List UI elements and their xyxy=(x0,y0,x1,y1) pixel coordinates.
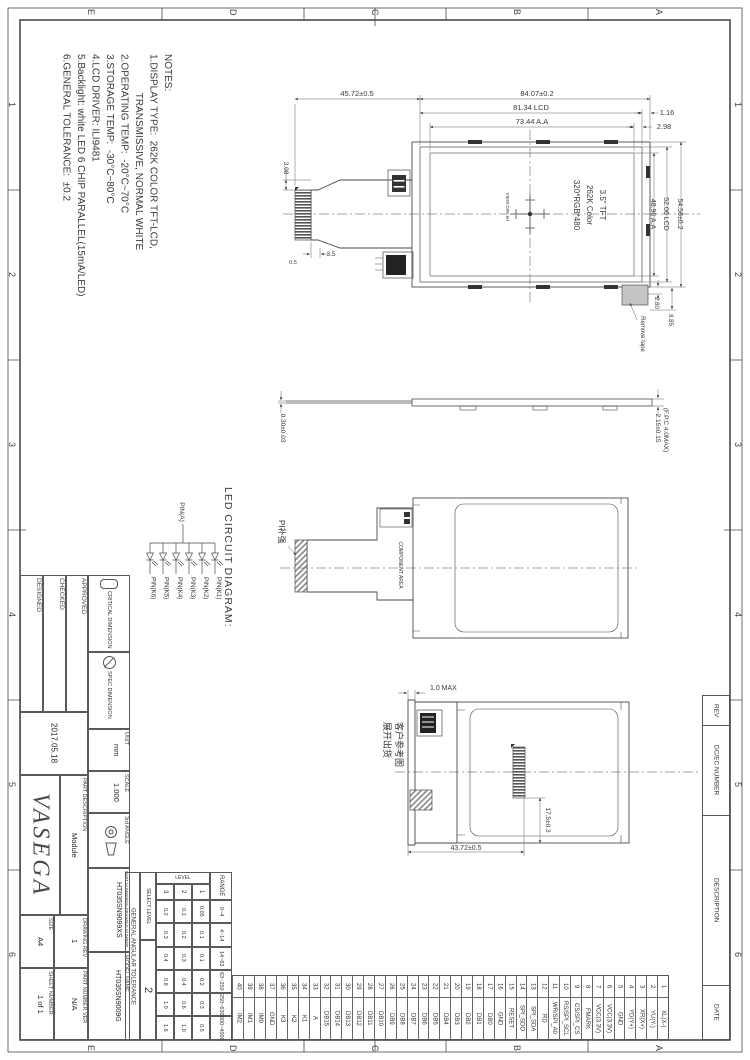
dim-fpc-width: 45.72±0.5 xyxy=(340,89,373,98)
pin-column: 1 XL(X-) xyxy=(657,976,668,1039)
pi-stiffener-label: PI补强 xyxy=(275,520,287,580)
side-view-dim-text: 0.30±0.03 2.15±0.15 (F.P.C 4.0MAX) xyxy=(279,408,669,452)
unfold-zebra-contacts xyxy=(513,747,525,798)
led-cathode-label: PIN(K5) xyxy=(157,577,170,639)
pin-name-cell: K3 xyxy=(277,998,287,1039)
select-level-value: 2 xyxy=(142,987,154,993)
zone-number: 4 xyxy=(7,612,17,617)
pin-number-cell: 39 xyxy=(244,976,254,998)
tolerance-select-value-cell: 2 xyxy=(140,940,156,1040)
note-line: TRANSMISSIVE, NORMAL WHITE xyxy=(131,54,146,454)
pin-column: 37 GND xyxy=(265,976,276,1039)
led-cathode-label: PIN(K4) xyxy=(170,577,183,639)
pin-number-cell: 4 xyxy=(625,976,635,998)
pin-column: 10 RS/SPI_SCL xyxy=(559,976,570,1039)
pin-name-cell: RESET xyxy=(506,998,516,1039)
zone-letter: C xyxy=(370,1045,380,1052)
level-col-2: 2 xyxy=(174,884,192,900)
pin-name-cell: SPI_SDA xyxy=(527,998,537,1039)
zone-letter: E xyxy=(86,1045,96,1051)
spec-dimension-icon xyxy=(103,656,116,669)
led-cathode-label: PIN(K1) xyxy=(209,577,222,639)
zone-letter: E xyxy=(86,9,96,15)
titleblock-part-description: PART DESCRIPTION Module xyxy=(60,775,88,915)
zone-letter: B xyxy=(512,1045,522,1051)
note-line: 4.LCD DRIVER: ILI9481 xyxy=(87,54,102,454)
pin-number-cell: 1 xyxy=(658,976,668,998)
zone-letter: A xyxy=(654,1045,664,1051)
pin-name-cell: YU(Y-) xyxy=(647,998,657,1039)
component-area-label: COMPONENT AREA xyxy=(397,541,403,589)
pin-name-cell: YD(Y+) xyxy=(625,998,635,1039)
tolerance-level-header-cell: LEVEL xyxy=(156,872,210,884)
pin-column: 25 DB8 xyxy=(396,976,407,1039)
tolerance-row: 0.4 0.3 0.1 14~63 xyxy=(156,947,232,970)
pin-name-cell: GND xyxy=(495,998,505,1039)
tolerance-row: 1.0 0.6 0.3 250~630 xyxy=(156,993,232,1016)
pin-name-cell: DB6 xyxy=(419,998,429,1039)
titleblock-designed: DESIGNED xyxy=(20,575,43,712)
tolerance-row: 0.2 0.1 0.05 0~4 xyxy=(156,900,232,923)
pin-name-cell: A xyxy=(310,998,320,1039)
level-col-1: 1 xyxy=(192,884,210,900)
dim-fpc-thickness: 0.30±0.03 xyxy=(279,414,286,443)
front-view-dimensions xyxy=(283,95,686,310)
led-circuit xyxy=(147,524,224,574)
pin-column: 32 DB15 xyxy=(320,976,331,1039)
unfold-view-dim-text: 1.0 MAX 43.72±0.5 17.5±0.3 xyxy=(430,685,551,852)
titleblock-model-name: MODEL NAME HT035SN9009G xyxy=(88,952,130,1040)
pin-name-cell: VCC(3.3V) xyxy=(593,998,603,1039)
pin-column: 29 DB12 xyxy=(352,976,363,1039)
pin-name-cell: RS/SPI_SCL xyxy=(560,998,570,1039)
pin-column: 34 K1 xyxy=(298,976,309,1039)
pin-name-cell: XL(X-) xyxy=(658,998,668,1039)
pin-number-cell: 17 xyxy=(484,976,494,998)
panel-color-label: 262K Color xyxy=(585,185,594,225)
pin-name-cell: K1 xyxy=(299,998,309,1039)
pin-column: 8 FMARK xyxy=(581,976,592,1039)
remove-tape-label: Remove tape xyxy=(639,316,645,352)
zone-number: 5 xyxy=(733,782,743,787)
pin-number-cell: 7 xyxy=(593,976,603,998)
pin-name-cell: DB0 xyxy=(484,998,494,1039)
pin-number-cell: 23 xyxy=(419,976,429,998)
panel-size-label: 3.5" TFT xyxy=(598,190,607,221)
tolerance-row: 0.3 0.2 0.1 4~14 xyxy=(156,923,232,946)
pin-number-cell: 22 xyxy=(429,976,439,998)
fpc-zebra-contacts xyxy=(295,190,311,240)
dim-module-width: 84.07±0.2 xyxy=(520,89,553,98)
titleblock-sheet-number: SHEET NUMBER 1 of 1 xyxy=(20,968,54,1040)
titleblock-approved: APPROVED xyxy=(66,575,88,712)
pin-number-cell: 26 xyxy=(386,976,396,998)
led-cathode-label: PIN(K6) xyxy=(144,577,157,639)
pin-column: 18 DB1 xyxy=(472,976,483,1039)
dim-aa-height: 48.96 A.A xyxy=(649,199,656,230)
pin-name-cell: DB13 xyxy=(342,998,352,1039)
drawing-sheet: 45.72±0.5 84.07±0.2 81.34 LCD 73.44 A.A … xyxy=(0,0,750,1060)
note-line: 5.Backlight: white LED 6 CHIP PARALLEL(1… xyxy=(73,54,88,454)
pin-number-cell: 2 xyxy=(647,976,657,998)
pin-number-cell: 25 xyxy=(397,976,407,998)
pin-column: 16 GND xyxy=(494,976,505,1039)
pin-name-cell: DB4 xyxy=(440,998,450,1039)
zone-number: 2 xyxy=(733,272,743,277)
note-line: 6.GENERAL TOLERANCE: ±0.2 xyxy=(58,54,73,454)
pin-column: 31 DB14 xyxy=(330,976,341,1039)
titleblock-part-number-ver: PART NUMBER VER N/A xyxy=(54,968,88,1040)
note-line: 1.DISPLAY TYPE: 262K COLOR TFT-LCD, xyxy=(145,54,160,454)
pin-number-cell: 12 xyxy=(538,976,548,998)
pin-number-cell: 33 xyxy=(310,976,320,998)
pin-number-cell: 15 xyxy=(506,976,516,998)
pin-name-cell: DB10 xyxy=(375,998,385,1039)
pin-column: 6 VCC(3.3V) xyxy=(603,976,614,1039)
dim-total-note: (F.P.C 4.0MAX) xyxy=(662,408,669,452)
pin-column: 14 SPI_SDO xyxy=(516,976,527,1039)
pin-table: 1 XL(X-) 2 YU(Y-) 3 XR(X+) 4 YD(Y+) 5 GN… xyxy=(231,975,669,1040)
panel-resolution-label: 320*RGB*480 xyxy=(572,180,581,231)
pin-name-cell: GND xyxy=(615,998,625,1039)
pin-name-cell: CS/SPI_CS xyxy=(571,998,581,1039)
titleblock-scale: SCALE 1.000 xyxy=(88,771,130,813)
select-level-label: SELECT LEVEL xyxy=(145,888,151,924)
pin-column: 30 DB13 xyxy=(341,976,352,1039)
zone-numbers-right: 123456 xyxy=(731,20,745,1040)
critical-dimension-icon xyxy=(100,579,118,589)
pin-column: 26 DB9 xyxy=(385,976,396,1039)
pin-name-cell: GND xyxy=(266,998,276,1039)
pin-column: 3 XR(X+) xyxy=(635,976,646,1039)
titleblock-checked: CHECKED xyxy=(43,575,66,712)
pin-name-cell: DB11 xyxy=(364,998,374,1039)
pin-column: 24 DB7 xyxy=(407,976,418,1039)
third-angle-symbol xyxy=(101,824,121,858)
dim-aa-width: 73.44 A.A xyxy=(516,117,549,126)
note-line: 2.OPERATING TEMP: -20°C~70°C xyxy=(116,54,131,454)
notes-block: NOTES: 1.DISPLAY TYPE: 262K COLOR TFT-LC… xyxy=(56,54,174,454)
pin-name-cell: DB9 xyxy=(386,998,396,1039)
fpc-tail xyxy=(295,170,413,278)
tolerance-table-title: GENERAL ANGULAR TOLERANCE xyxy=(130,908,136,1005)
dim-bottom-gap1: 2.80 xyxy=(653,297,659,309)
titleblock-date: 2017.05.18 xyxy=(20,712,88,775)
dim-bottom-gap2: 8.85 xyxy=(667,314,673,326)
note-line: 3.STORAGE TEMP: -30°C~80°C xyxy=(102,54,117,454)
led-symbols xyxy=(147,543,224,574)
pin-number-cell: 28 xyxy=(364,976,374,998)
zone-number: 4 xyxy=(733,612,743,617)
pin-number-cell: 21 xyxy=(440,976,450,998)
pin-column: 39 IM1 xyxy=(243,976,254,1039)
zone-number: 1 xyxy=(733,102,743,107)
range-header-cell: RANGE xyxy=(210,872,232,900)
zone-number: 1 xyxy=(7,102,17,107)
tolerance-row: 1.6 1.0 0.5 600~4000 xyxy=(156,1016,232,1039)
pin-name-cell: XR(X+) xyxy=(636,998,646,1039)
pin-number-cell: 16 xyxy=(495,976,505,998)
zone-number: 5 xyxy=(7,782,17,787)
pin-number-cell: 38 xyxy=(255,976,265,998)
titleblock-size: SIZE A4 xyxy=(20,915,54,968)
pin-number-cell: 27 xyxy=(375,976,385,998)
pin-column: 22 DB5 xyxy=(428,976,439,1039)
pin-name-cell: DB5 xyxy=(429,998,439,1039)
pin-column: 20 DB3 xyxy=(450,976,461,1039)
tape-area xyxy=(622,285,648,305)
company-logo: VASEGA xyxy=(27,793,54,897)
zone-letter: D xyxy=(228,1045,238,1052)
pin-column: 38 IM0 xyxy=(254,976,265,1039)
tolerance-select-label-cell: SELECT LEVEL xyxy=(140,872,156,940)
zone-numbers-left: 123456 xyxy=(5,20,19,1040)
led-cathode-labels: PIN(K6)PIN(K5)PIN(K4)PIN(K3)PIN(K2)PIN(K… xyxy=(144,577,223,639)
pin-column: 36 K3 xyxy=(276,976,287,1039)
pin-name-cell: VCC(3.3V) xyxy=(604,998,614,1039)
titleblock-company: VASEGA xyxy=(20,775,60,915)
pin-name-cell: IM1 xyxy=(244,998,254,1039)
pin-number-cell: 19 xyxy=(462,976,472,998)
titleblock-spec-dimension: SPEC DIMENSION xyxy=(88,652,130,729)
pin-name-cell: DB3 xyxy=(451,998,461,1039)
pin-column: 12 RD xyxy=(537,976,548,1039)
level-col-3: 3 xyxy=(156,884,174,900)
pin-column: 28 DB11 xyxy=(363,976,374,1039)
pin-number-cell: 32 xyxy=(321,976,331,998)
pin-column: 7 VCC(3.3V) xyxy=(592,976,603,1039)
pin-name-cell: DB12 xyxy=(353,998,363,1039)
titleblock-part-number: PART NUMBER/IN-DRAWING NUMBER HT035SN909… xyxy=(88,868,130,952)
remove-tape: Remove tape xyxy=(622,285,648,353)
customer-note: 客户参考图展开出货 xyxy=(381,722,429,817)
pin-number-cell: 35 xyxy=(288,976,298,998)
pin-number-cell: 30 xyxy=(342,976,352,998)
range-header: RANGE xyxy=(218,875,224,896)
pin-number-cell: 10 xyxy=(560,976,570,998)
dim-fpc-3: 0.5 xyxy=(289,260,297,266)
pin-name-cell: RD xyxy=(538,998,548,1039)
pin-name-cell: IM2 xyxy=(233,998,243,1039)
dim-lcd-width: 81.34 LCD xyxy=(513,103,549,112)
zone-number: 6 xyxy=(7,952,17,957)
pin-number-cell: 5 xyxy=(615,976,625,998)
pin-name-cell: K2 xyxy=(288,998,298,1039)
zone-letters-bottom: EDCBA xyxy=(20,1041,730,1055)
zone-letter: A xyxy=(654,9,664,15)
pin-number-cell: 29 xyxy=(353,976,363,998)
front-view xyxy=(283,130,700,304)
dim-fpc-1: 3.08 xyxy=(282,162,289,175)
titleblock-unit: UNIT mm xyxy=(88,729,130,771)
zone-number: 3 xyxy=(7,442,17,447)
side-view xyxy=(278,389,664,416)
titleblock-critical-dimension: CRITICAL DIMENSION xyxy=(88,575,130,652)
led-diagram-title: LED CIRCUIT DIAGRAM: xyxy=(222,487,234,652)
pin-column: 17 DB0 xyxy=(483,976,494,1039)
panel-labels: 3.5" TFT 262K Color 320*RGB*480 VIEW DIR… xyxy=(505,180,607,231)
pin-number-cell: 14 xyxy=(517,976,527,998)
zone-number: 2 xyxy=(7,272,17,277)
pin-number-cell: 18 xyxy=(473,976,483,998)
led-cathode-label: PIN(K3) xyxy=(183,577,196,639)
led-cathode-label: PIN(K2) xyxy=(196,577,209,639)
level-header: LEVEL xyxy=(175,875,191,881)
pin-name-cell: DB8 xyxy=(397,998,407,1039)
pin-number-cell: 24 xyxy=(408,976,418,998)
pin-column: 33 A xyxy=(309,976,320,1039)
pin-number-cell: 34 xyxy=(299,976,309,998)
view-direction-label: VIEW DIR. 6H xyxy=(505,193,510,222)
dim-lcd-height: 52.06 LCD xyxy=(662,197,669,230)
pin-name-cell: WR/SPI_A0 xyxy=(549,998,559,1039)
pin-name-cell: IM0 xyxy=(255,998,265,1039)
pin-column: 27 DB10 xyxy=(374,976,385,1039)
pin-number-cell: 40 xyxy=(233,976,243,998)
pin-column: 40 IM2 xyxy=(232,976,243,1039)
pin-column: 13 SPI_SDA xyxy=(526,976,537,1039)
back-connector xyxy=(380,509,412,527)
tolerance-rows: 0.2 0.1 0.05 0~4 0.3 0.2 0.1 4~14 0.4 0.… xyxy=(156,900,232,1040)
pin-name-cell: DB15 xyxy=(321,998,331,1039)
pin-number-cell: 11 xyxy=(549,976,559,998)
pi-stiffener xyxy=(295,540,307,592)
pin-column: 19 DB2 xyxy=(461,976,472,1039)
zone-number: 3 xyxy=(733,442,743,447)
pin-number-cell: 31 xyxy=(331,976,341,998)
pin-column: 35 K2 xyxy=(287,976,298,1039)
dim-fpc-end: 1.0 MAX xyxy=(430,685,457,692)
pin-column: 23 DB6 xyxy=(418,976,429,1039)
dim-total-thickness: 2.15±0.15 xyxy=(654,414,661,443)
pin-column: 15 RESET xyxy=(505,976,516,1039)
pin-number-cell: 13 xyxy=(527,976,537,998)
pin-number-cell: 8 xyxy=(582,976,592,998)
revision-table: REV DC/EC NUMBER DESCRIPTION DATE xyxy=(702,695,730,1040)
pin-column: 2 YU(Y-) xyxy=(646,976,657,1039)
notes-title: NOTES: xyxy=(160,54,175,454)
tolerance-row: 0.8 0.4 0.2 63~250 xyxy=(156,970,232,993)
dim-right-gap1: 1.16 xyxy=(660,108,675,117)
zone-letter: B xyxy=(512,9,522,15)
dim-right-gap2: 2.98 xyxy=(657,122,672,131)
pin-column: 5 GND xyxy=(614,976,625,1039)
revision-header-date: DATE xyxy=(703,986,729,1039)
tolerance-table-title-cell: GENERAL ANGULAR TOLERANCE xyxy=(125,872,140,1040)
pin-name-cell: DB1 xyxy=(473,998,483,1039)
zone-number: 6 xyxy=(733,952,743,957)
pin-number-cell: 9 xyxy=(571,976,581,998)
revision-header-description: DESCRIPTION xyxy=(703,816,729,986)
pin-name-cell: DB14 xyxy=(331,998,341,1039)
pin-name-cell: DB2 xyxy=(462,998,472,1039)
pin-column: 4 YD(Y+) xyxy=(624,976,635,1039)
dim-unfold-length: 43.72±0.5 xyxy=(450,845,481,852)
center-cross-mark xyxy=(510,194,550,234)
zone-letter: D xyxy=(228,9,238,16)
led-anode-label: PIN(A) xyxy=(178,502,185,522)
pin-name-cell: DB7 xyxy=(408,998,418,1039)
dim-connector: 17.5±0.3 xyxy=(544,807,551,833)
pin-column: 21 DB4 xyxy=(439,976,450,1039)
pin-number-cell: 36 xyxy=(277,976,287,998)
back-view xyxy=(280,498,640,638)
pin-name-cell: FMARK xyxy=(582,998,592,1039)
dim-module-height: 54.56±0.2 xyxy=(676,198,683,229)
titleblock-drawing-rev: DRAWING REV 1 xyxy=(54,915,88,968)
pin-number-cell: 6 xyxy=(604,976,614,998)
pin-column: 9 CS/SPI_CS xyxy=(570,976,581,1039)
notes-lines: 1.DISPLAY TYPE: 262K COLOR TFT-LCD, TRAN… xyxy=(58,54,160,454)
zone-letter: C xyxy=(370,9,380,16)
dim-fpc-2: 3.5 xyxy=(326,251,335,258)
pin-number-cell: 37 xyxy=(266,976,276,998)
revision-header-rev: REV xyxy=(703,696,729,726)
pin-column: 11 WR/SPI_A0 xyxy=(548,976,559,1039)
customer-note-line: 展开出货 xyxy=(381,722,393,817)
zone-letters-top: EDCBA xyxy=(20,5,730,19)
revision-header-dcec: DC/EC NUMBER xyxy=(703,726,729,816)
pin-number-cell: 20 xyxy=(451,976,461,998)
titleblock-projection: 3rd ANGLE xyxy=(88,813,130,868)
pin-number-cell: 3 xyxy=(636,976,646,998)
customer-note-line: 客户参考图 xyxy=(393,722,405,817)
pin-name-cell: SPI_SDO xyxy=(517,998,527,1039)
